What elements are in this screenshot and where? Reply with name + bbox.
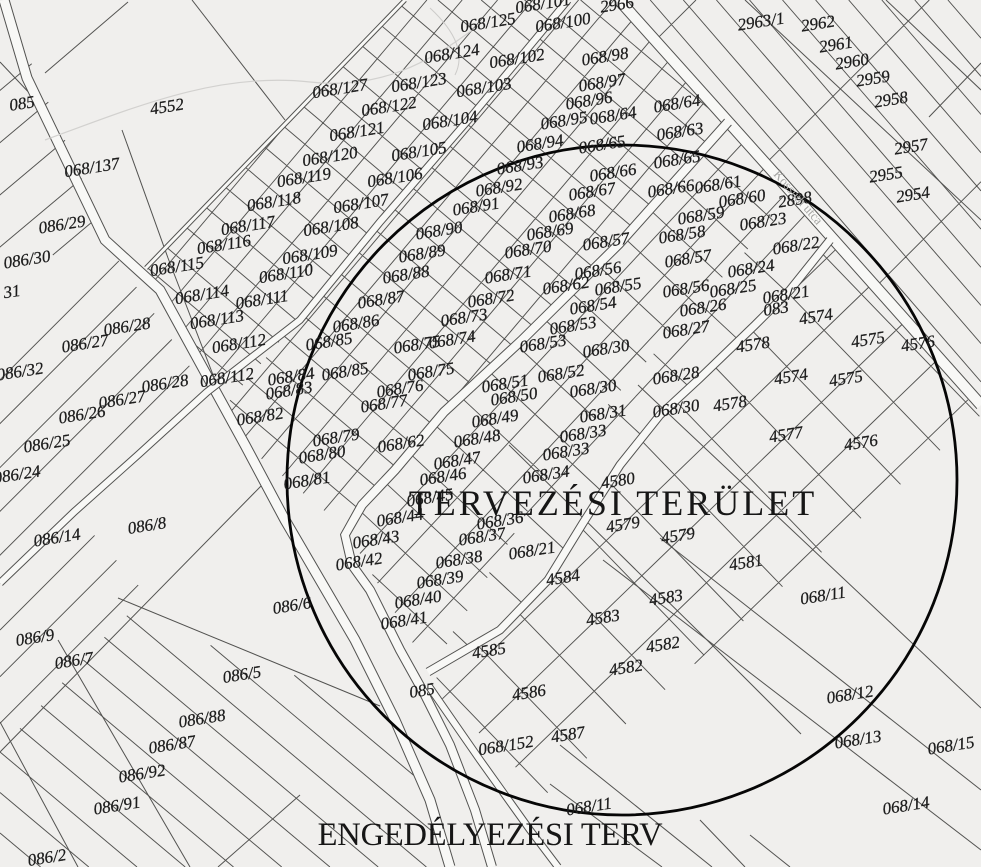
svg-text:31: 31 <box>1 281 22 303</box>
svg-text:TERVEZÉSI TERÜLET: TERVEZÉSI TERÜLET <box>409 483 817 523</box>
svg-text:085: 085 <box>408 679 436 702</box>
svg-text:ENGEDÉLYEZÉSI TERV: ENGEDÉLYEZÉSI TERV <box>318 817 663 853</box>
svg-text:083: 083 <box>762 297 790 320</box>
svg-text:085: 085 <box>8 92 36 115</box>
